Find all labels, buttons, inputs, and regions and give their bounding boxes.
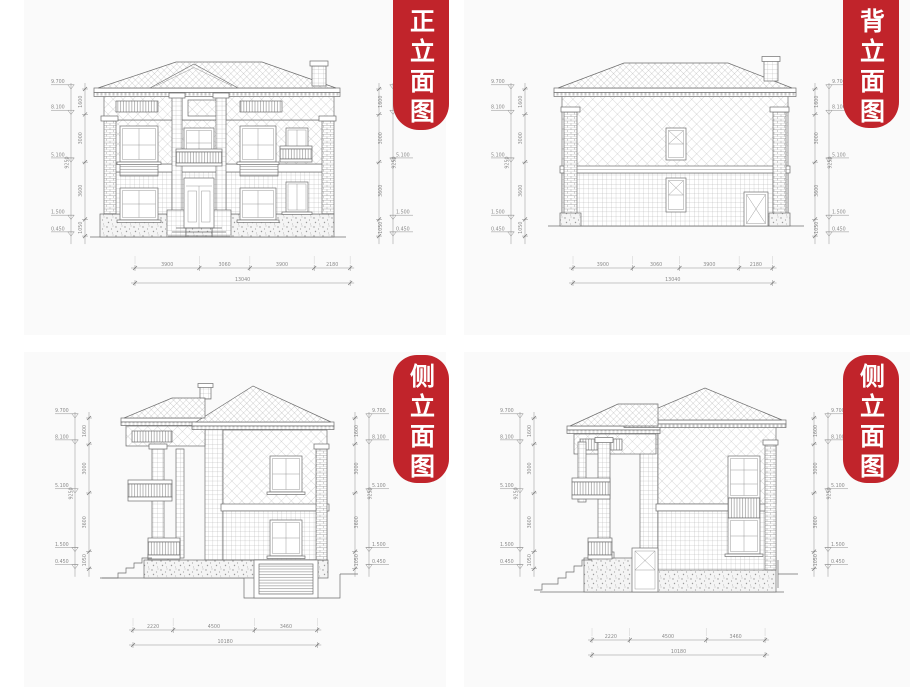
title-badge: 侧立面图 bbox=[393, 355, 449, 483]
total-dim: 9250 bbox=[828, 156, 834, 168]
elevation-label: 5.100 bbox=[831, 483, 845, 489]
total-dim: 9250 bbox=[513, 487, 519, 499]
balcony-railing bbox=[572, 482, 610, 495]
balcony-railing bbox=[128, 484, 172, 497]
segment-dim: 3000 bbox=[78, 132, 84, 144]
elevation-label: 1.500 bbox=[832, 210, 846, 216]
elevation-label: 1.500 bbox=[491, 210, 505, 216]
segment-dim: 3600 bbox=[78, 185, 84, 197]
segment-dim: 1600 bbox=[82, 425, 88, 437]
total-dim: 13040 bbox=[235, 277, 250, 283]
elevation-label: 9.700 bbox=[372, 408, 386, 414]
pilaster bbox=[316, 449, 327, 560]
segment-dim: 1600 bbox=[527, 425, 533, 437]
segment-dim: 3900 bbox=[703, 262, 715, 268]
cornice bbox=[554, 88, 796, 93]
segment-dim: 3000 bbox=[527, 462, 533, 474]
total-dim: 9250 bbox=[827, 487, 833, 499]
total-dim: 10180 bbox=[671, 649, 686, 655]
elevation-label: 1.500 bbox=[831, 542, 845, 548]
elevation-label: 5.100 bbox=[832, 152, 846, 158]
segment-dim: 1050 bbox=[354, 554, 360, 566]
elevation-label: 1.500 bbox=[372, 542, 386, 548]
hip-roof bbox=[196, 386, 331, 422]
cornice bbox=[94, 88, 340, 93]
segment-dim: 3460 bbox=[280, 624, 292, 630]
elevation-label: 8.100 bbox=[51, 105, 65, 111]
pilaster bbox=[564, 112, 577, 226]
segment-dim: 1600 bbox=[378, 96, 384, 108]
segment-dim: 3000 bbox=[354, 462, 360, 474]
segment-dim: 2220 bbox=[147, 624, 159, 630]
elevation-label: 0.450 bbox=[491, 226, 505, 232]
balcony-railing bbox=[588, 542, 612, 555]
panel-side-elevation-b: 9.7008.1005.1001.5000.450160030003600105… bbox=[464, 352, 910, 687]
panel-front-elevation: 9.7008.1005.1001.5000.450160030003600105… bbox=[24, 0, 446, 335]
elevation-label: 9.700 bbox=[500, 408, 514, 414]
porch-roof bbox=[570, 404, 658, 426]
segment-dim: 3600 bbox=[813, 516, 819, 528]
panel-title: 背立面图 bbox=[859, 8, 884, 128]
panel-side-elevation-a: 9.7008.1005.1001.5000.450160030003600105… bbox=[24, 352, 446, 687]
total-dim: 9250 bbox=[64, 156, 70, 168]
segment-dim: 1600 bbox=[813, 425, 819, 437]
side-elevation-a-drawing: 9.7008.1005.1001.5000.450160030003600105… bbox=[24, 352, 446, 687]
hip-roof bbox=[558, 63, 792, 88]
segment-dim: 3060 bbox=[218, 262, 230, 268]
front-elevation-drawing: 9.7008.1005.1001.5000.450160030003600105… bbox=[24, 0, 446, 335]
elevation-label: 8.100 bbox=[500, 434, 514, 440]
segment-dim: 2180 bbox=[750, 262, 762, 268]
elevation-label: 5.100 bbox=[396, 152, 410, 158]
segment-dim: 3000 bbox=[82, 462, 88, 474]
side-ledge bbox=[778, 560, 798, 588]
balcony-railing bbox=[280, 149, 312, 159]
panel-back-elevation: 9.7008.1005.1001.5000.450160030003600105… bbox=[464, 0, 910, 335]
elevation-label: 8.100 bbox=[491, 105, 505, 111]
segment-dim: 3600 bbox=[527, 516, 533, 528]
segment-dim: 1600 bbox=[78, 96, 84, 108]
panel-title: 侧立面图 bbox=[859, 363, 884, 483]
cornice bbox=[192, 422, 334, 426]
segment-dim: 1050 bbox=[378, 222, 384, 234]
segment-dim: 1600 bbox=[518, 96, 524, 108]
elevation-label: 8.100 bbox=[372, 434, 386, 440]
elevation-label: 1.500 bbox=[51, 210, 65, 216]
elevation-label: 9.700 bbox=[51, 79, 65, 85]
balcony-railing bbox=[148, 542, 180, 555]
exterior-stairs bbox=[534, 560, 592, 590]
elevation-label: 5.100 bbox=[372, 483, 386, 489]
elevation-label: 5.100 bbox=[500, 483, 514, 489]
segment-dim: 1050 bbox=[527, 554, 533, 566]
segment-dim: 3600 bbox=[354, 516, 360, 528]
balcony-railing bbox=[728, 498, 760, 518]
segment-dim: 4500 bbox=[208, 624, 220, 630]
title-badge: 侧立面图 bbox=[843, 355, 899, 483]
pilaster bbox=[773, 112, 786, 226]
segment-dim: 1050 bbox=[813, 554, 819, 566]
segment-dim: 3000 bbox=[814, 132, 820, 144]
segment-dim: 4500 bbox=[662, 634, 674, 640]
porch-roof bbox=[124, 398, 205, 418]
segment-dim: 1050 bbox=[82, 554, 88, 566]
elevation-label: 5.100 bbox=[55, 483, 69, 489]
elevation-label: 1.500 bbox=[55, 542, 69, 548]
total-dim: 10180 bbox=[217, 639, 232, 645]
segment-dim: 2220 bbox=[605, 634, 617, 640]
front-elevation-building bbox=[90, 61, 346, 237]
segment-dim: 1600 bbox=[354, 425, 360, 437]
balcony-railing bbox=[176, 152, 222, 163]
segment-dim: 3000 bbox=[813, 462, 819, 474]
elevation-label: 0.450 bbox=[372, 559, 386, 565]
segment-dim: 3600 bbox=[518, 185, 524, 197]
elevation-label: 0.450 bbox=[500, 559, 514, 565]
segment-dim: 3900 bbox=[597, 262, 609, 268]
segment-dim: 3600 bbox=[814, 185, 820, 197]
elevation-label: 0.450 bbox=[831, 559, 845, 565]
elevation-label: 9.700 bbox=[491, 79, 505, 85]
pilaster bbox=[765, 445, 776, 570]
back-elevation-building bbox=[548, 57, 804, 227]
elevation-label: 0.450 bbox=[55, 559, 69, 565]
elevation-label: 0.450 bbox=[51, 226, 65, 232]
segment-dim: 2180 bbox=[326, 262, 338, 268]
segment-dim: 3000 bbox=[378, 132, 384, 144]
total-dim: 9250 bbox=[368, 487, 374, 499]
total-dim: 9250 bbox=[504, 156, 510, 168]
chimney bbox=[764, 61, 778, 81]
segment-dim: 3060 bbox=[650, 262, 662, 268]
total-dim: 13040 bbox=[665, 277, 680, 283]
elevation-label: 5.100 bbox=[51, 152, 65, 158]
elevation-label: 8.100 bbox=[55, 434, 69, 440]
side-elevation-a-building bbox=[100, 384, 358, 599]
chimney bbox=[200, 387, 211, 399]
elevation-label: 1.500 bbox=[396, 210, 410, 216]
elevation-label: 0.450 bbox=[832, 226, 846, 232]
panel-title: 正立面图 bbox=[409, 8, 434, 128]
segment-dim: 3000 bbox=[518, 132, 524, 144]
segment-dim: 3900 bbox=[276, 262, 288, 268]
title-badge: 正立面图 bbox=[393, 0, 449, 130]
title-badge: 背立面图 bbox=[843, 0, 899, 128]
pier bbox=[205, 426, 223, 560]
pilaster bbox=[104, 121, 116, 214]
panel-title: 侧立面图 bbox=[409, 363, 434, 483]
segment-dim: 3600 bbox=[82, 516, 88, 528]
side-elevation-b-building bbox=[534, 388, 798, 592]
segment-dim: 3460 bbox=[730, 634, 742, 640]
elevation-label: 9.700 bbox=[55, 408, 69, 414]
segment-dim: 3600 bbox=[378, 185, 384, 197]
elevation-label: 0.450 bbox=[396, 226, 410, 232]
chimney bbox=[312, 66, 326, 86]
pilaster bbox=[322, 121, 334, 214]
segment-dim: 1600 bbox=[814, 96, 820, 108]
elevation-label: 5.100 bbox=[491, 152, 505, 158]
segment-dim: 1050 bbox=[518, 222, 524, 234]
garage-door bbox=[259, 564, 313, 594]
segment-dim: 1050 bbox=[78, 222, 84, 234]
total-dim: 9250 bbox=[392, 156, 398, 168]
segment-dim: 1050 bbox=[814, 222, 820, 234]
total-dim: 9250 bbox=[68, 487, 74, 499]
segment-dim: 3900 bbox=[161, 262, 173, 268]
porch-cornice bbox=[121, 418, 208, 422]
elevation-label: 1.500 bbox=[500, 542, 514, 548]
